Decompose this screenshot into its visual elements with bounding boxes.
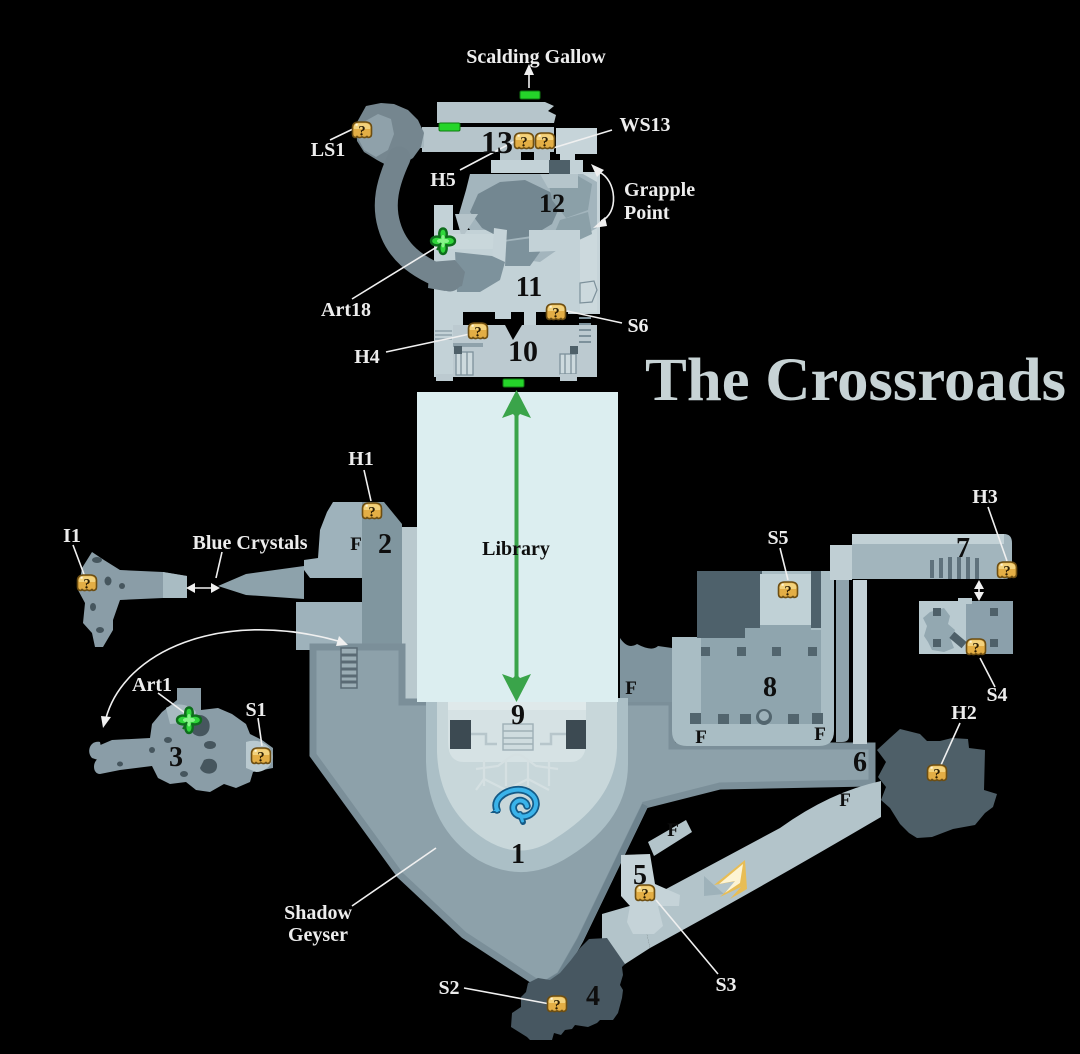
svg-text:12: 12	[539, 189, 565, 218]
svg-text:S1: S1	[245, 699, 266, 721]
svg-text:F: F	[814, 724, 826, 745]
svg-text:Art1: Art1	[132, 674, 172, 696]
svg-text:S4: S4	[986, 684, 1007, 706]
svg-text:5: 5	[633, 860, 647, 891]
svg-text:S2: S2	[438, 977, 459, 999]
svg-text:WS13: WS13	[619, 114, 670, 136]
svg-text:S6: S6	[627, 315, 648, 337]
svg-text:Geyser: Geyser	[288, 924, 348, 946]
svg-text:F: F	[625, 678, 637, 699]
svg-text:H3: H3	[972, 486, 998, 508]
svg-text:2: 2	[378, 529, 392, 560]
svg-text:F: F	[667, 820, 679, 841]
svg-text:Point: Point	[624, 202, 670, 224]
svg-text:10: 10	[508, 335, 538, 368]
svg-text:H1: H1	[348, 448, 374, 470]
svg-text:LS1: LS1	[311, 139, 345, 161]
svg-text:F: F	[350, 534, 362, 555]
svg-text:Blue Crystals: Blue Crystals	[193, 532, 308, 554]
svg-text:F: F	[839, 790, 851, 811]
svg-text:9: 9	[511, 700, 525, 731]
svg-text:4: 4	[586, 981, 600, 1012]
svg-text:H5: H5	[430, 169, 456, 191]
svg-text:1: 1	[511, 839, 525, 870]
svg-text:7: 7	[956, 533, 970, 564]
svg-text:Scalding Gallow: Scalding Gallow	[466, 46, 606, 68]
svg-text:H4: H4	[354, 346, 380, 368]
svg-text:13: 13	[481, 124, 513, 160]
svg-text:Library: Library	[482, 538, 550, 560]
svg-text:Art18: Art18	[321, 299, 371, 321]
svg-text:6: 6	[853, 747, 867, 778]
svg-text:8: 8	[763, 672, 777, 703]
svg-text:F: F	[695, 727, 707, 748]
svg-text:Shadow: Shadow	[284, 902, 352, 924]
svg-text:S3: S3	[715, 974, 736, 996]
svg-text:Grapple: Grapple	[624, 179, 695, 201]
svg-text:11: 11	[516, 272, 542, 303]
svg-text:3: 3	[169, 742, 183, 773]
svg-text:I1: I1	[63, 525, 81, 547]
svg-text:H2: H2	[951, 702, 977, 724]
svg-text:S5: S5	[767, 527, 788, 549]
svg-text:The Crossroads: The Crossroads	[645, 347, 1066, 414]
